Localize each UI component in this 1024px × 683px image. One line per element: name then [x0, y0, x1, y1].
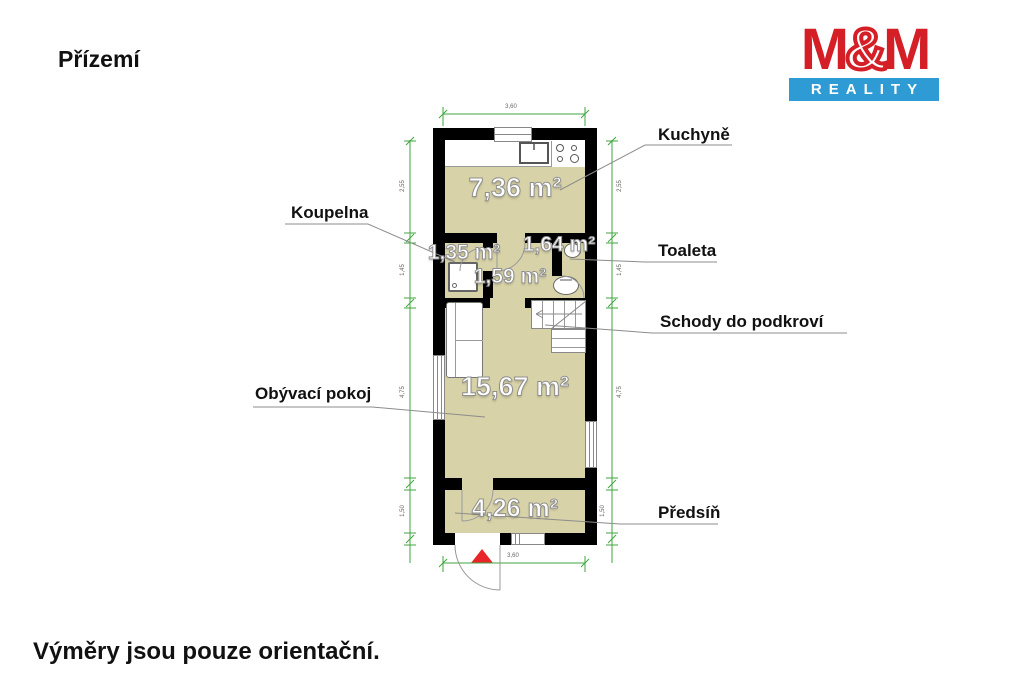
floorplan-page: Přízemí Výměry jsou pouze orientační. M&… — [0, 0, 1024, 683]
label-kitchen: Kuchyně — [658, 125, 730, 145]
label-living: Obývací pokoj — [255, 384, 371, 404]
label-bathroom: Koupelna — [291, 203, 368, 223]
stair-details — [536, 301, 586, 329]
toilet-door — [562, 276, 584, 298]
dim-left-1: 2,55 — [400, 180, 406, 192]
area-living: 15,67 m² — [461, 372, 569, 403]
leader-living — [253, 407, 485, 417]
dim-right-1: 2,55 — [617, 180, 623, 192]
plan-linework — [0, 0, 1024, 683]
fixture-details — [534, 142, 572, 280]
entrance-door — [455, 545, 500, 590]
area-hallway: 4,26 m² — [472, 495, 558, 524]
area-corridor: 1,59 m² — [474, 265, 546, 289]
dim-left-4: 1,50 — [400, 505, 406, 517]
dim-right-2: 1,45 — [617, 264, 623, 276]
area-bathroom: 1,35 m² — [428, 241, 500, 265]
dim-left-3: 4,75 — [400, 386, 406, 398]
dim-right-4: 1,50 — [600, 505, 606, 517]
label-hallway: Předsíň — [658, 503, 720, 523]
label-toilet: Toaleta — [658, 241, 716, 261]
dim-right-3: 4,75 — [617, 386, 623, 398]
leader-kitchen — [560, 145, 732, 190]
area-kitchen: 7,36 m² — [468, 173, 561, 204]
area-toilet: 1,64 m² — [523, 233, 595, 257]
dim-left-2: 1,45 — [400, 264, 406, 276]
label-stairs: Schody do podkroví — [660, 312, 823, 332]
dim-bottom: 3,60 — [507, 553, 519, 559]
dim-top: 3,60 — [505, 104, 517, 110]
